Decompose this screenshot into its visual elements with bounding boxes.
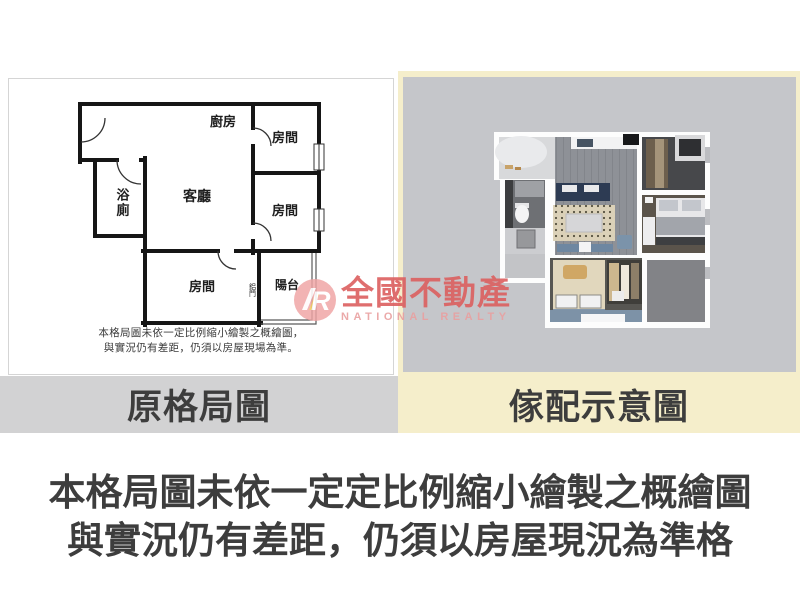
footer-disclaimer-line1: 本格局圖未依一定定比例縮小繪製之概繪圖 xyxy=(0,469,800,517)
plan-disclaimer-line1: 本格局圖未依一定比例縮小繪製之概繪圖， xyxy=(9,328,393,339)
plan-disclaimer-line2: 與實況仍有差距，仍須以房屋現場為準。 xyxy=(9,343,393,354)
door-arcs xyxy=(81,118,271,269)
room-label-bedroom-mid-right: 房間 xyxy=(272,205,298,218)
furnished-plan-caption-band: 傢配示意圖 xyxy=(398,376,800,433)
render-bathroom-area xyxy=(505,180,545,228)
room-label-balcony: 陽台 xyxy=(275,279,299,291)
original-plan-panel: 廚房 房間 浴廁 客廳 房間 房間 陽台 鋁門 本格局圖未依一定比例縮小繪製之概… xyxy=(8,78,394,375)
render-bedroom-top-right xyxy=(642,135,705,190)
room-label-kitchen: 廚房 xyxy=(210,116,236,129)
room-label-living: 客廳 xyxy=(183,190,211,204)
furnished-plan-panel: 傢配示意圖 xyxy=(398,71,800,433)
render-bedroom-bottom xyxy=(550,258,642,322)
render-living-area xyxy=(553,134,639,255)
room-label-sliding-door: 鋁門 xyxy=(249,283,256,297)
listing-image: 廚房 房間 浴廁 客廳 房間 房間 陽台 鋁門 本格局圖未依一定比例縮小繪製之概… xyxy=(0,0,800,600)
render-balcony-area xyxy=(647,260,705,322)
room-label-bedroom-bottom: 房間 xyxy=(189,281,215,294)
furnished-plan-render xyxy=(403,77,796,372)
furnished-plan-image xyxy=(403,77,796,372)
original-plan-caption: 原格局圖 xyxy=(127,379,271,430)
render-laundry-area xyxy=(505,228,545,278)
room-label-bathroom: 浴廁 xyxy=(115,188,128,218)
render-bedroom-mid-right xyxy=(642,195,705,253)
room-label-bedroom-top-right: 房間 xyxy=(272,132,298,145)
furnished-plan-caption: 傢配示意圖 xyxy=(509,379,689,430)
render-kitchen-area xyxy=(495,136,555,179)
footer-disclaimer-line2: 與實況仍有差距，仍須以房屋現況為準格 xyxy=(0,517,800,565)
footer-disclaimer: 本格局圖未依一定定比例縮小繪製之概繪圖 與實況仍有差距，仍須以房屋現況為準格 xyxy=(0,469,800,565)
original-plan-caption-band: 原格局圖 xyxy=(0,376,398,433)
